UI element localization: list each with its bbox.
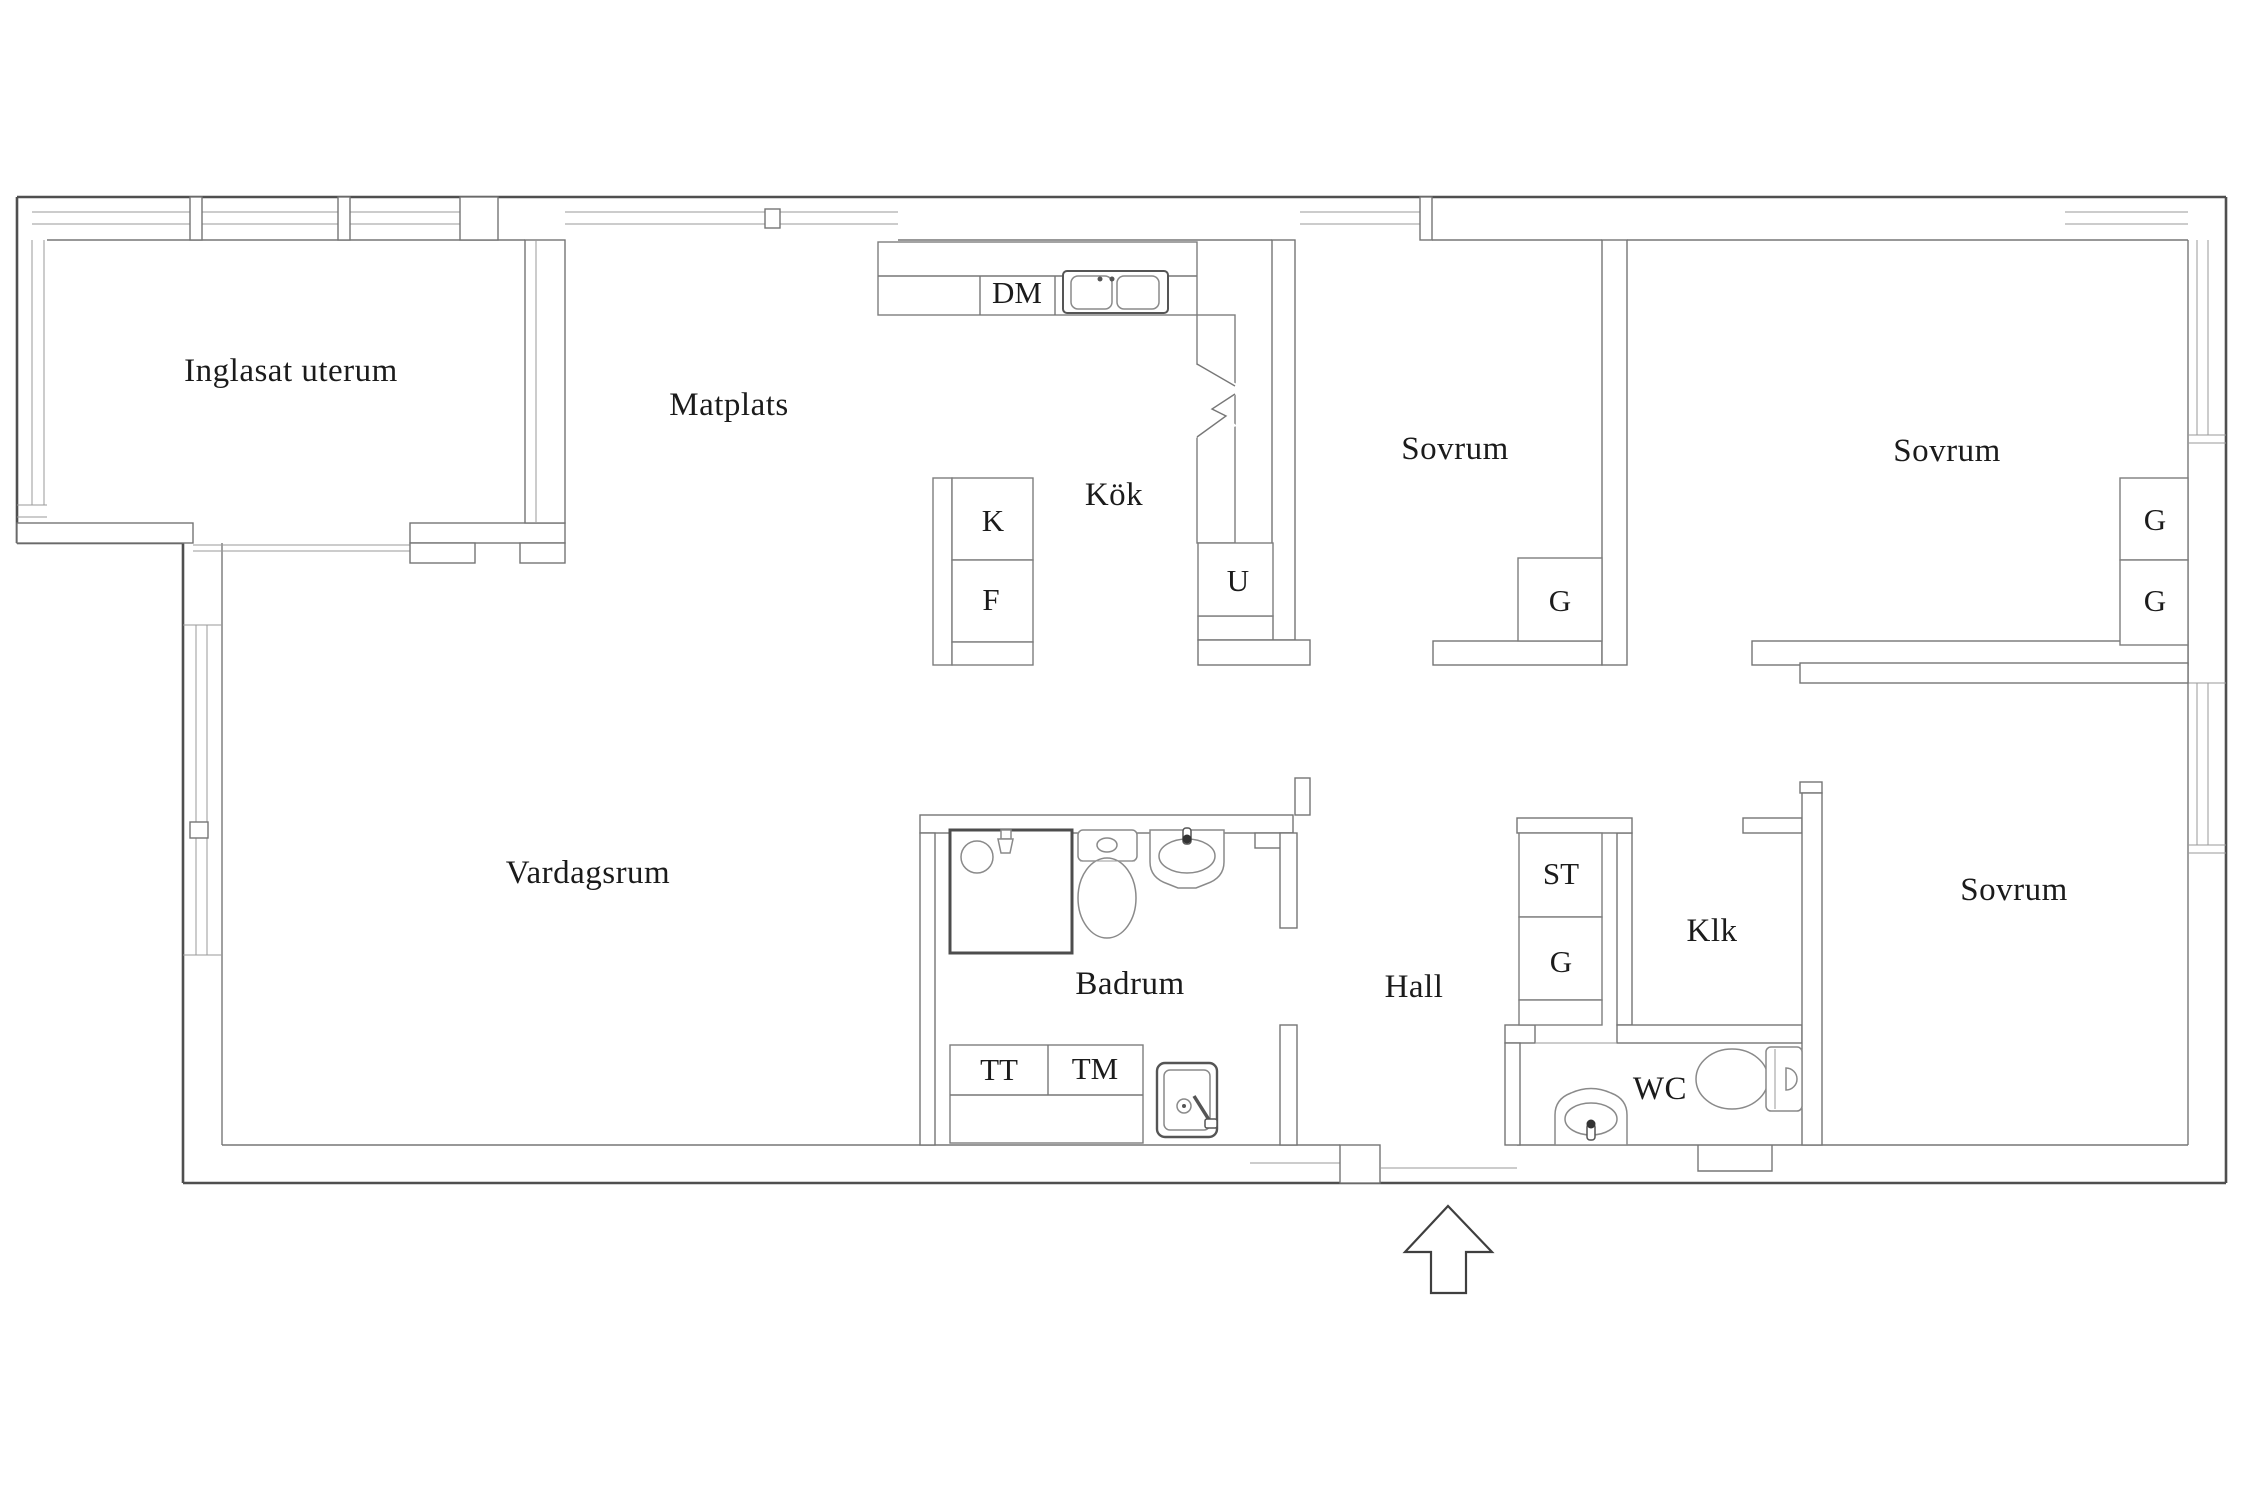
room-label-wc: WC <box>1633 1071 1687 1107</box>
wardrobe-label-g-1: G <box>1549 583 1571 618</box>
cabinet-label-k: K <box>982 503 1005 538</box>
wardrobe-label-g-2: G <box>2144 502 2166 537</box>
window-mullion <box>765 209 780 228</box>
room-label-inglasat-uterum: Inglasat uterum <box>184 353 398 389</box>
wall-pier <box>460 197 498 240</box>
appliance-label-tt: TT <box>980 1052 1018 1087</box>
bathroom-sink-icon <box>1150 828 1224 888</box>
kitchen-fittings <box>878 242 1273 665</box>
room-label-sovrum-1: Sovrum <box>1401 431 1509 467</box>
wardrobe-label-g-4: G <box>1550 944 1572 979</box>
toilet-icon <box>1078 830 1137 938</box>
exterior-walls <box>17 197 2226 1183</box>
room-label-hall: Hall <box>1385 969 1444 1005</box>
laundry-sink-icon <box>1157 1063 1217 1137</box>
room-label-klk: Klk <box>1687 913 1738 949</box>
cabinet-label-st: ST <box>1543 856 1579 891</box>
shower-icon <box>950 830 1072 953</box>
cabinet-side-panel <box>933 478 952 665</box>
wardrobe-label-g-3: G <box>2144 583 2166 618</box>
appliance-label-dm: DM <box>992 275 1042 310</box>
floor-plan: Inglasat uterum Matplats Kök Sovrum Sovr… <box>0 0 2250 1500</box>
room-label-kok: Kök <box>1085 477 1143 513</box>
window-post <box>1420 197 1432 240</box>
appliance-label-u: U <box>1227 563 1249 598</box>
room-label-sovrum-2: Sovrum <box>1893 433 2001 469</box>
window-mullion <box>190 822 208 838</box>
room-label-matplats: Matplats <box>669 387 788 423</box>
appliance-label-tm: TM <box>1072 1051 1119 1086</box>
room-label-badrum: Badrum <box>1075 966 1184 1002</box>
kitchen-sink-icon <box>1063 271 1168 313</box>
wc-toilet-icon <box>1696 1047 1802 1111</box>
entrance-arrow-icon <box>1405 1206 1492 1293</box>
room-label-vardagsrum: Vardagsrum <box>506 855 670 891</box>
room-label-sovrum-3: Sovrum <box>1960 872 2068 908</box>
window-post <box>338 197 350 240</box>
wc-sink-icon <box>1555 1089 1627 1146</box>
window-post <box>190 197 202 240</box>
floor-plan-drawing: Inglasat uterum Matplats Kök Sovrum Sovr… <box>0 0 2250 1500</box>
cabinet-label-f: F <box>982 582 999 617</box>
